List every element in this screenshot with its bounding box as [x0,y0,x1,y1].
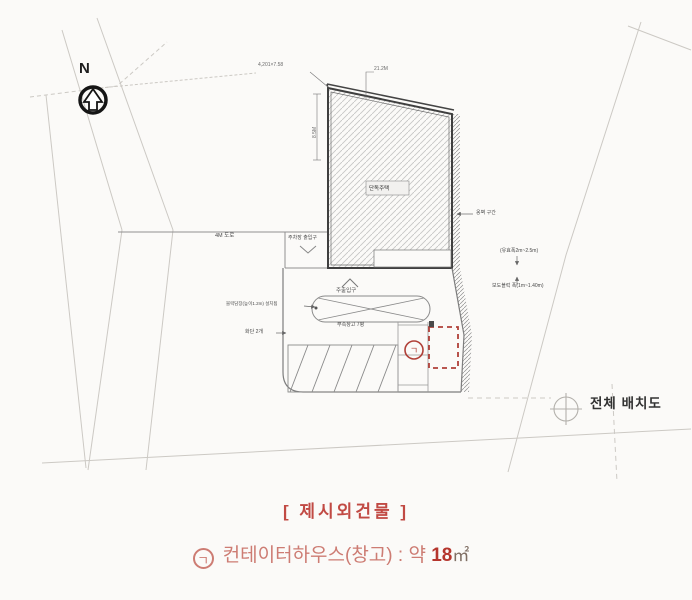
dimension-left-vertical: 8.5M [313,127,318,138]
right-note-3-label: 보도블럭 폭(1m~1.40m) [492,284,543,289]
caption-marker-icon: ㄱ [193,548,214,569]
north-label: N [79,60,90,77]
right-note-1-label: 옹벽 구간 [476,211,496,216]
dimension-top-right: 21.2M [374,67,388,72]
north-arrow-icon [80,87,106,113]
caption-item-text: 컨테이터하우스(창고) : 약 [223,545,426,566]
title-crosshair-icon [550,393,582,425]
caption-item: ㄱ컨테이터하우스(창고) : 약 18㎡ [0,540,692,569]
left-note-2-label: 화단 2개 [245,330,263,335]
caption-item-value: 18 [431,545,452,566]
main-entrance-arrow-icon [342,279,358,287]
scanned-site-plan-page: ㄱ N 단독주택 4,201×7.58 21.2M 8.5M 4M 도로 주차장… [0,0,692,600]
plan-title: 전체 배치도 [590,392,662,412]
site-plan-drawing: ㄱ [0,0,692,480]
ink-mark [429,321,434,327]
left-note-1-label: 블럭담장(높이1.2m) 설치됨 [226,302,278,307]
main-entrance-label: 주출입구 [336,289,356,295]
storage-boxes [398,322,428,392]
main-building [327,84,454,268]
right-note-2-label: (유효폭2m~2.5m) [500,249,538,254]
yard-boundary [283,268,464,392]
canopy-structure [312,296,430,322]
building-label: 단독주택 [369,184,389,192]
parking-entrance-label: 주차장 출입구 [288,236,317,241]
container-house-annotation: ㄱ [405,321,458,368]
container-dashed-outline [429,327,458,368]
building-porch [374,250,451,267]
dimension-top-left: 4,201×7.58 [258,63,283,68]
marker-char: ㄱ [410,346,418,356]
canopy-note-label: 부속창고 7평 [337,323,364,328]
caption-heading: [ 제시외건물 ] [0,497,692,522]
slope-hatch-band [452,114,472,392]
road-label: 4M 도로 [215,234,234,240]
parking-stalls [288,345,398,392]
caption-item-unit: ㎡ [452,546,469,565]
parking-entrance-arrow-icon [300,246,316,253]
